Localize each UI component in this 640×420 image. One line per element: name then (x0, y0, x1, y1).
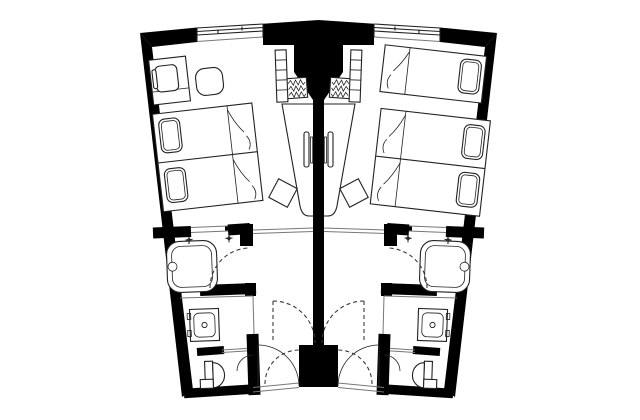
toilet (200, 361, 225, 389)
bath-corner-pier (240, 224, 253, 246)
double-bed-left (152, 103, 262, 212)
top-center-wall-t (263, 20, 374, 45)
bathroom-block-left (153, 224, 256, 395)
tv-bracket (311, 137, 313, 163)
sink-room-top-line (180, 296, 253, 298)
window-right (374, 24, 440, 42)
double-bed-right (370, 108, 490, 216)
stool (269, 179, 297, 207)
floor-plan-canvas (0, 0, 640, 420)
ottoman (195, 66, 225, 96)
bathroom-block-right (381, 224, 484, 395)
vestibule-side-wall (253, 334, 255, 395)
window-left (197, 24, 263, 42)
tub-soap-niche (168, 262, 177, 271)
sink-toilet-divider (197, 350, 224, 352)
single-bed-right (380, 45, 487, 103)
window-sill (197, 37, 263, 42)
toilet-flush-box (200, 379, 213, 388)
bath-top-wall-a (153, 232, 191, 234)
tv-panel (304, 132, 309, 167)
desk-left (149, 56, 191, 105)
toilet-bowl (213, 362, 225, 387)
shelf-unit (275, 50, 288, 102)
washbasin (187, 308, 220, 341)
vestibule-partition-left (253, 228, 313, 234)
luggage-rack (286, 77, 307, 98)
door-swing (258, 345, 299, 386)
bottom-wall-left (184, 389, 254, 394)
vestibule-partition-right (324, 228, 384, 234)
bath-door-jamb (245, 283, 256, 296)
bottom-wall-right (383, 389, 453, 394)
bottom-center-core (299, 345, 338, 387)
desk-chair (154, 64, 179, 92)
